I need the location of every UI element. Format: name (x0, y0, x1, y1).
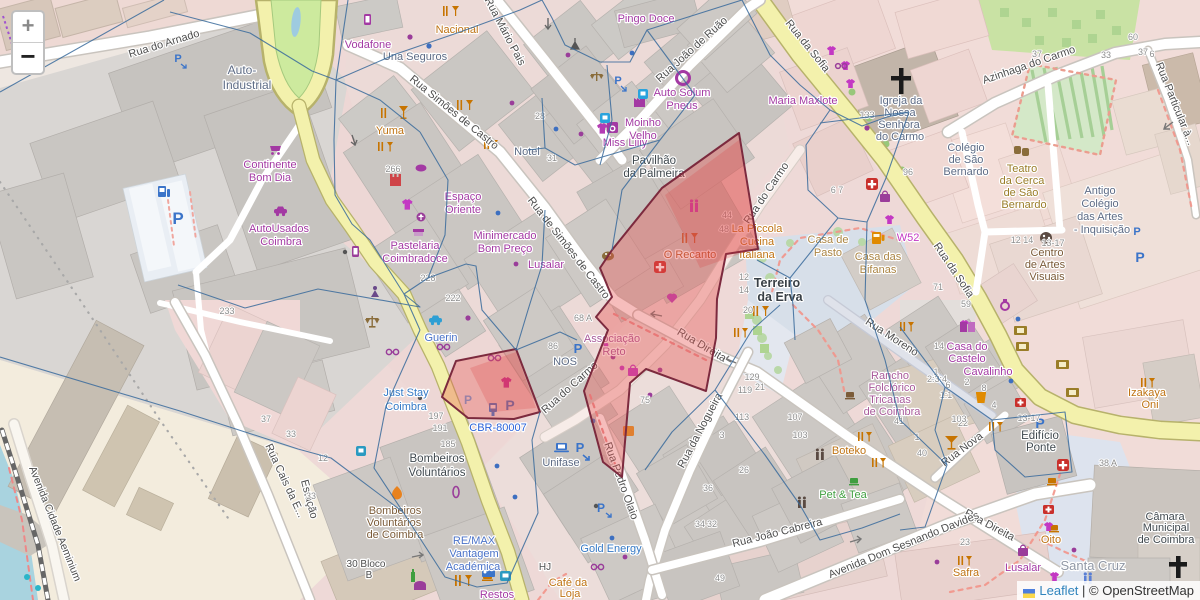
svg-text:P: P (576, 440, 585, 455)
svg-text:14: 14 (739, 285, 749, 295)
svg-text:AutoUsados: AutoUsados (249, 223, 309, 235)
svg-text:P: P (1135, 249, 1144, 265)
svg-text:P: P (597, 501, 605, 515)
svg-text:Safra: Safra (953, 567, 980, 579)
svg-text:Auto Solum: Auto Solum (654, 87, 711, 99)
svg-text:71: 71 (933, 282, 943, 292)
svg-text:Visuais: Visuais (1029, 271, 1065, 283)
svg-text:68 A: 68 A (574, 313, 592, 323)
svg-text:Velho: Velho (629, 130, 657, 142)
svg-text:Lusalar: Lusalar (528, 259, 564, 271)
svg-text:103: 103 (792, 430, 807, 440)
svg-text:49: 49 (715, 573, 725, 583)
svg-text:Continente: Continente (243, 159, 296, 171)
svg-text:P: P (172, 209, 183, 228)
svg-text:3: 3 (719, 430, 724, 440)
svg-text:HJ: HJ (539, 562, 551, 573)
svg-text:Castelo: Castelo (948, 353, 985, 365)
svg-text:33: 33 (306, 491, 316, 501)
svg-text:191: 191 (432, 423, 447, 433)
svg-text:P: P (574, 341, 583, 356)
svg-text:38 A: 38 A (1099, 458, 1117, 468)
svg-text:Pneus: Pneus (666, 100, 698, 112)
svg-text:Coimbra: Coimbra (385, 401, 427, 413)
svg-text:Colégio: Colégio (1081, 198, 1118, 210)
svg-text:NOS: NOS (553, 356, 577, 368)
svg-text:Antigo: Antigo (1084, 185, 1115, 197)
svg-text:Pingo Doce: Pingo Doce (618, 13, 675, 25)
svg-text:Una Seguros: Una Seguros (383, 51, 448, 63)
svg-text:23: 23 (960, 537, 970, 547)
svg-text:Municipal: Municipal (1143, 522, 1189, 534)
svg-text:4: 4 (991, 400, 996, 410)
svg-text:CBR-80007: CBR-80007 (469, 422, 526, 434)
svg-text:Santa Cruz: Santa Cruz (1060, 558, 1125, 573)
svg-text:Pastelaria: Pastelaria (391, 240, 441, 252)
svg-text:Boteko: Boteko (832, 445, 866, 457)
svg-text:30 Bloco: 30 Bloco (347, 559, 386, 570)
svg-text:185: 185 (440, 439, 455, 449)
svg-text:Colégio: Colégio (947, 142, 984, 154)
svg-text:Centro: Centro (1030, 247, 1063, 259)
svg-text:Terreiro: Terreiro (754, 276, 801, 290)
svg-text:das Artes: das Artes (1077, 211, 1123, 223)
svg-text:da Cerca: da Cerca (1000, 175, 1046, 187)
svg-text:Coimbra: Coimbra (260, 236, 302, 248)
svg-text:37: 37 (1138, 47, 1148, 57)
svg-text:103: 103 (951, 414, 966, 424)
svg-text:Ponte: Ponte (1026, 442, 1056, 454)
svg-text:Pavilhão: Pavilhão (632, 155, 676, 167)
svg-text:Casa de: Casa de (808, 234, 849, 246)
svg-text:37: 37 (1032, 49, 1042, 59)
svg-text:2: 2 (964, 377, 969, 387)
svg-text:Casa do: Casa do (947, 341, 988, 353)
svg-text:36: 36 (703, 483, 713, 493)
svg-text:de São: de São (949, 154, 984, 166)
svg-text:21: 21 (755, 382, 765, 392)
svg-text:Oito: Oito (1041, 534, 1061, 546)
svg-text:Guerin: Guerin (424, 332, 457, 344)
svg-text:Industrial: Industrial (223, 78, 272, 92)
svg-text:Académica: Académica (446, 561, 501, 573)
svg-text:Oni: Oni (1141, 399, 1158, 411)
svg-text:Oriente: Oriente (445, 204, 481, 216)
svg-text:113: 113 (735, 412, 749, 422)
svg-text:da Erva: da Erva (757, 290, 803, 304)
svg-text:de Coimbra: de Coimbra (864, 406, 922, 418)
svg-text:266: 266 (385, 164, 400, 174)
svg-text:Izakaya: Izakaya (1128, 387, 1167, 399)
svg-text:Notel: Notel (514, 146, 540, 158)
svg-text:59: 59 (961, 299, 971, 309)
svg-text:8: 8 (981, 383, 986, 393)
svg-text:233: 233 (219, 306, 234, 316)
svg-text:1:1: 1:1 (940, 390, 953, 400)
svg-text:Igreja da: Igreja da (880, 95, 924, 107)
svg-text:34: 34 (695, 519, 705, 529)
svg-text:P: P (174, 53, 181, 65)
svg-text:W52: W52 (897, 232, 920, 244)
svg-text:Vantagem: Vantagem (449, 548, 498, 560)
svg-text:Gold Energy: Gold Energy (580, 543, 642, 555)
svg-text:Lusalar: Lusalar (1005, 562, 1041, 574)
svg-text:26: 26 (739, 465, 749, 475)
svg-text:197: 197 (428, 411, 443, 421)
svg-text:Vodafone: Vodafone (345, 39, 392, 51)
svg-text:P: P (1133, 226, 1140, 238)
svg-text:6 7: 6 7 (831, 185, 844, 195)
svg-text:Pet & Tea: Pet & Tea (819, 489, 867, 501)
svg-text:33: 33 (286, 429, 296, 439)
svg-text:14: 14 (934, 341, 944, 351)
svg-text:Unifase: Unifase (542, 457, 579, 469)
svg-text:Maria Maxlote: Maria Maxlote (768, 95, 837, 107)
svg-text:Pasto: Pasto (814, 247, 842, 259)
svg-text:RE/MAX: RE/MAX (453, 535, 496, 547)
svg-text:Espaço: Espaço (445, 191, 482, 203)
svg-text:86: 86 (548, 341, 558, 351)
svg-text:Senhora: Senhora (878, 119, 920, 131)
svg-text:Coimbradoce: Coimbradoce (382, 253, 447, 265)
svg-text:Loja: Loja (560, 588, 582, 600)
svg-text:- Inquisição: - Inquisição (1074, 224, 1130, 236)
svg-text:107: 107 (787, 412, 802, 422)
svg-text:Tricanas: Tricanas (869, 394, 911, 406)
svg-text:6: 6 (1149, 49, 1154, 59)
svg-text:Bom Preço: Bom Preço (478, 243, 532, 255)
svg-text:40: 40 (917, 448, 927, 458)
svg-text:Minimercado: Minimercado (474, 230, 537, 242)
svg-text:Bombeiros: Bombeiros (410, 453, 465, 465)
svg-text:Teatro: Teatro (1007, 163, 1038, 175)
svg-text:12: 12 (739, 272, 749, 282)
svg-text:96: 96 (903, 167, 913, 177)
svg-text:Bernardo: Bernardo (1001, 199, 1046, 211)
svg-text:B: B (366, 570, 373, 581)
svg-text:33: 33 (1101, 50, 1111, 60)
svg-text:13-17: 13-17 (1017, 413, 1040, 423)
svg-text:Restos: Restos (480, 589, 515, 600)
svg-text:P: P (614, 75, 621, 87)
svg-text:119: 119 (738, 385, 752, 395)
svg-text:Auto-: Auto- (228, 63, 257, 77)
svg-text:133: 133 (859, 110, 874, 120)
svg-text:37: 37 (261, 414, 271, 424)
svg-text:de Coimbra: de Coimbra (1138, 534, 1196, 546)
svg-text:12 14: 12 14 (1011, 235, 1034, 245)
svg-text:Bernardo: Bernardo (943, 166, 988, 178)
svg-text:222: 222 (445, 293, 460, 303)
svg-text:Casa das: Casa das (855, 251, 902, 263)
svg-text:13-17: 13-17 (1041, 238, 1064, 248)
svg-text:Bom Dia: Bom Dia (249, 172, 292, 184)
svg-text:de São: de São (1004, 187, 1039, 199)
svg-text:Cavalinho: Cavalinho (964, 366, 1013, 378)
svg-text:Voluntários: Voluntários (409, 467, 466, 479)
svg-text:32: 32 (707, 519, 717, 529)
svg-text:60: 60 (1128, 32, 1138, 42)
svg-text:20: 20 (743, 305, 753, 315)
svg-text:Yuma: Yuma (376, 125, 405, 137)
svg-text:Nacional: Nacional (436, 24, 479, 36)
svg-text:de Artes: de Artes (1025, 259, 1066, 271)
svg-text:129: 129 (744, 372, 759, 382)
svg-text:Moinho: Moinho (625, 117, 661, 129)
svg-text:75: 75 (640, 395, 650, 405)
svg-text:Edifício: Edifício (1021, 430, 1059, 442)
